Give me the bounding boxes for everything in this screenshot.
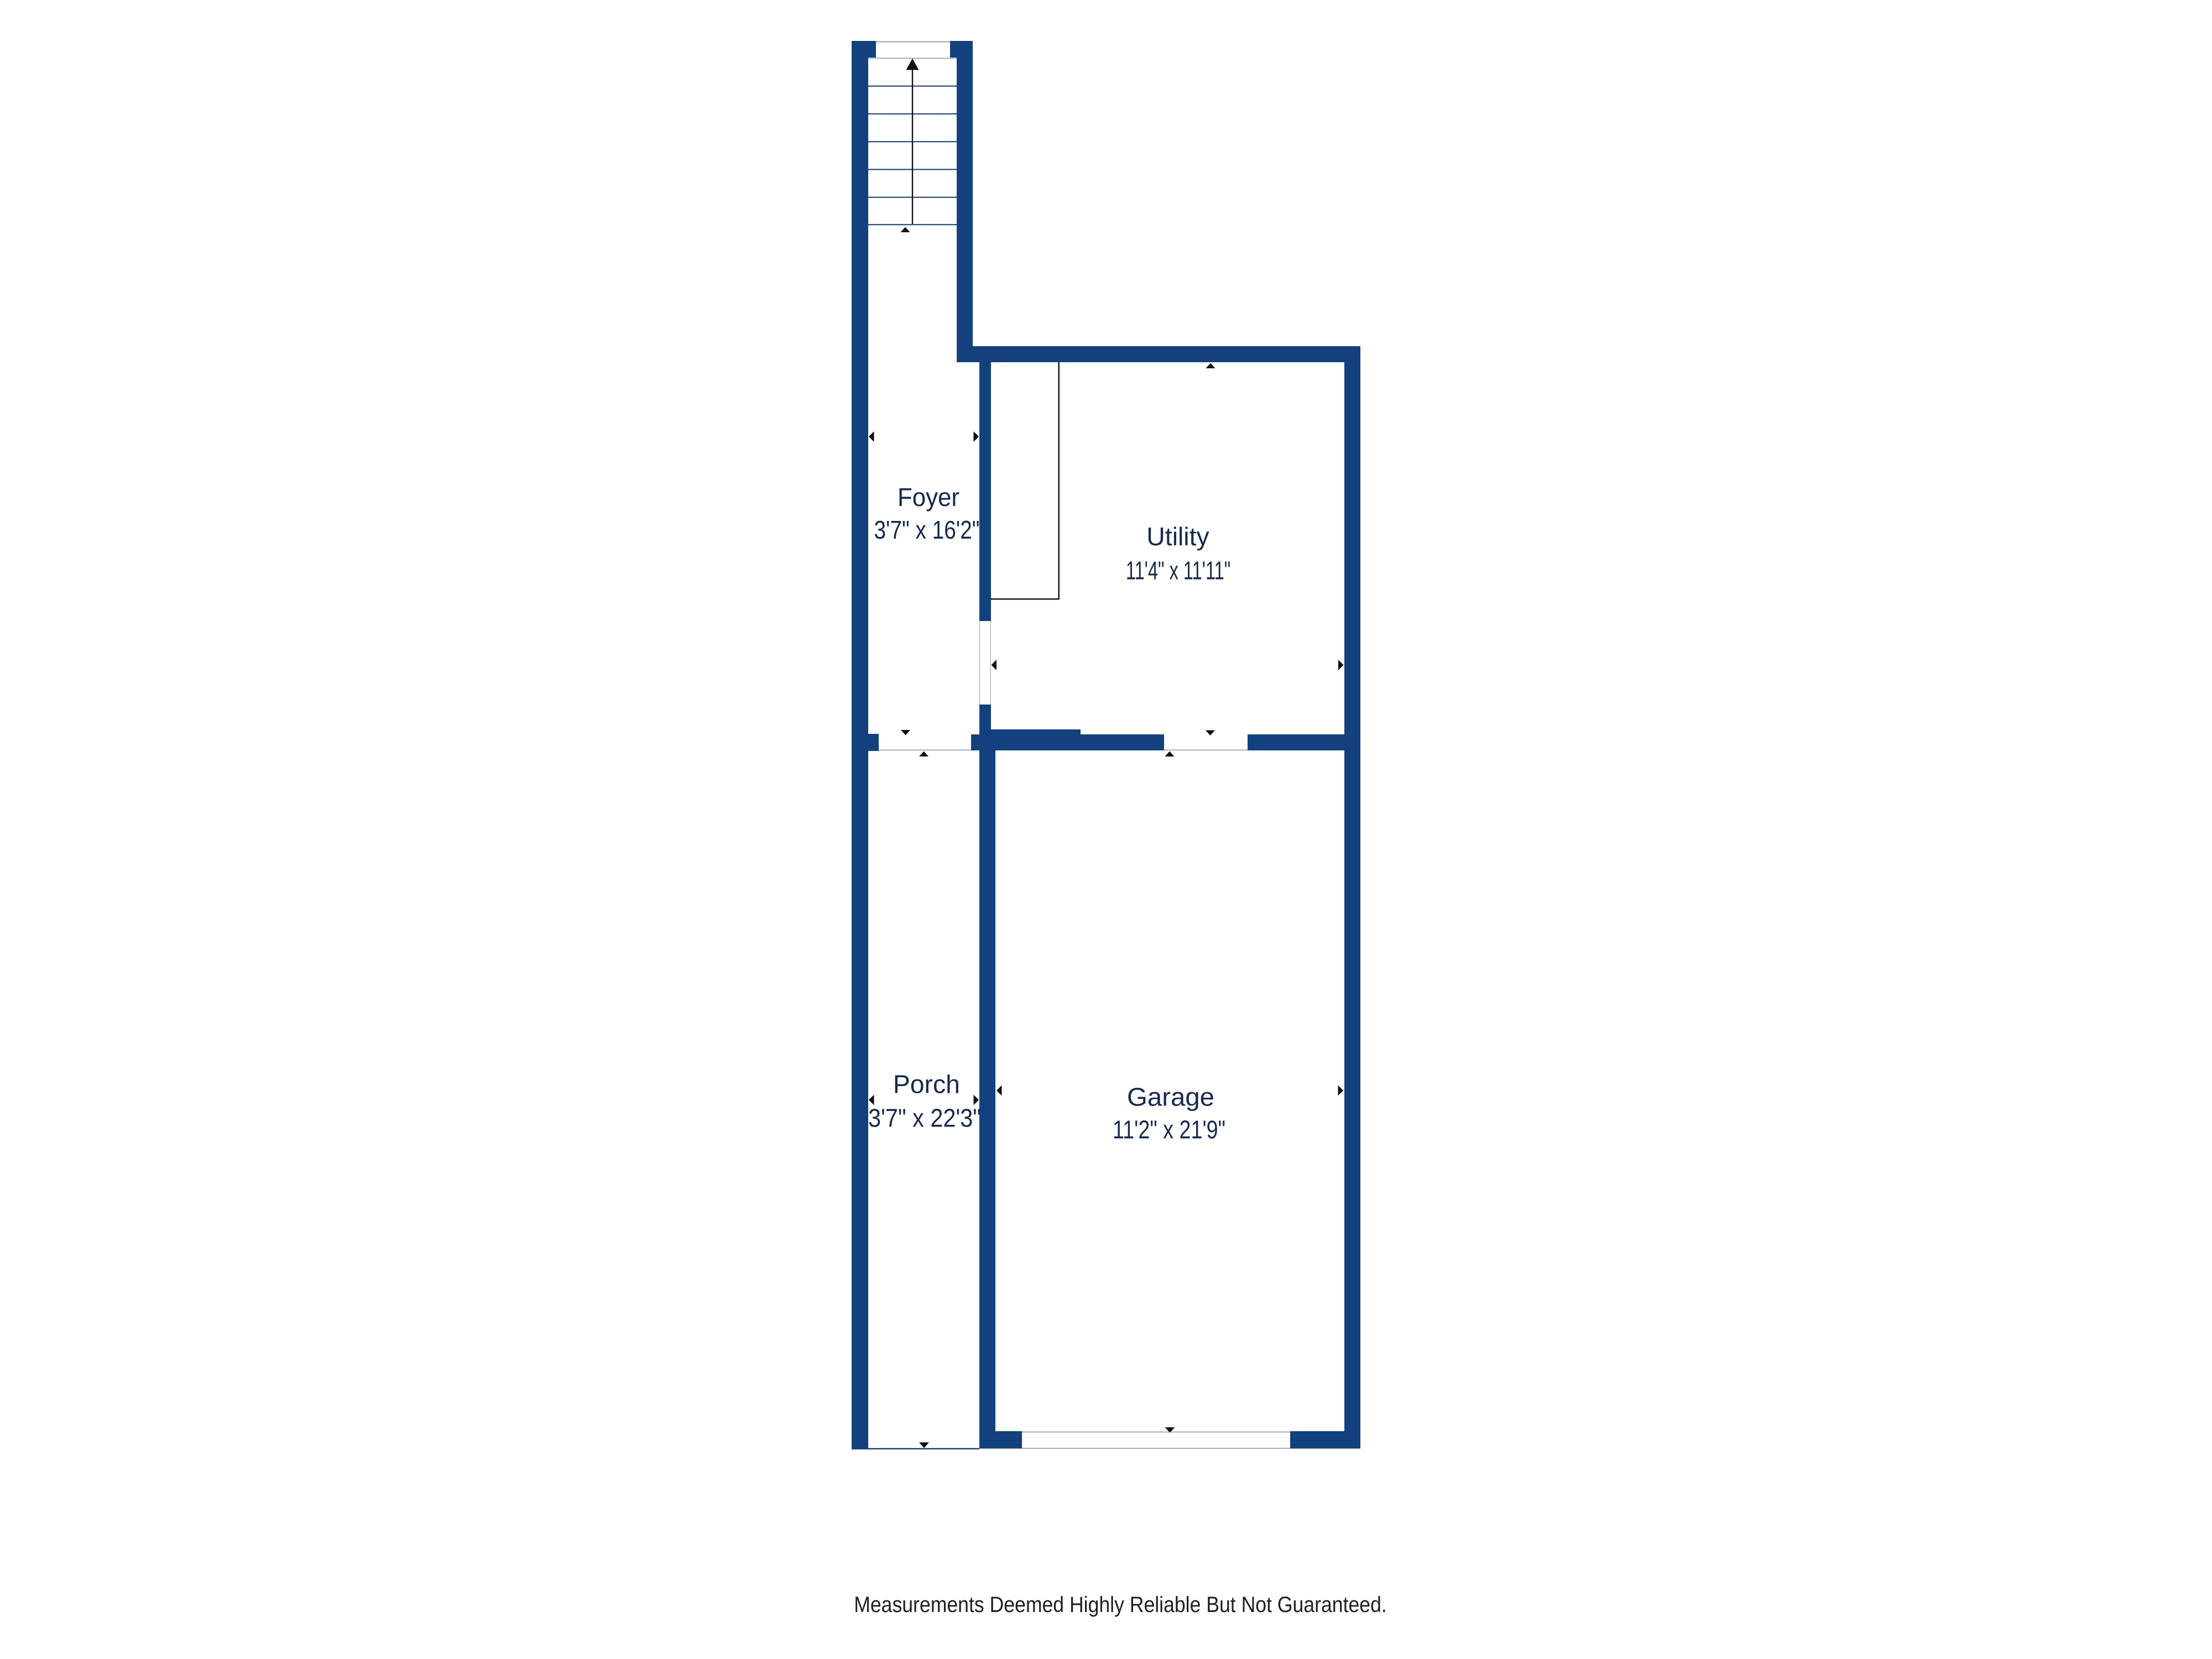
svg-text:Measurements Deemed Highly Rel: Measurements Deemed Highly Reliable But … [854, 1593, 1387, 1617]
svg-text:Porch: Porch [893, 1070, 960, 1099]
svg-text:3'7" x 22'3": 3'7" x 22'3" [868, 1104, 981, 1133]
svg-text:Garage: Garage [1127, 1083, 1214, 1111]
svg-text:Foyer: Foyer [898, 483, 959, 512]
svg-text:Utility: Utility [1146, 522, 1209, 551]
svg-text:11'4" x 11'11": 11'4" x 11'11" [1126, 557, 1230, 585]
svg-text:3'7" x 16'2": 3'7" x 16'2" [874, 516, 979, 545]
svg-text:11'2" x 21'9": 11'2" x 21'9" [1113, 1115, 1225, 1144]
